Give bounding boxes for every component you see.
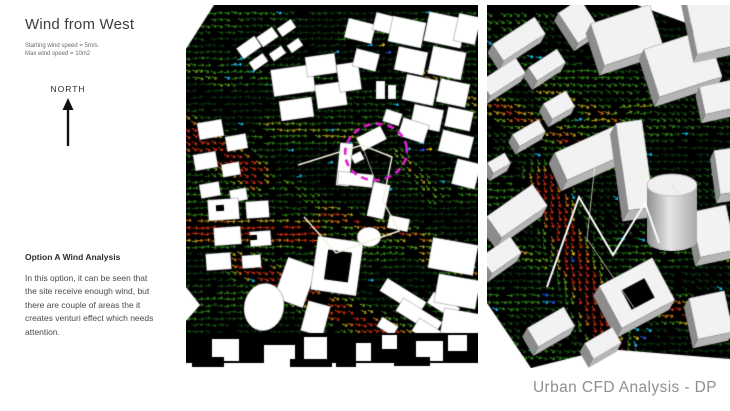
wind-param-start: Starting wind speed = 5m/s.	[25, 42, 99, 50]
wind-param-max: Max wind speed = 10m2	[25, 50, 99, 58]
analysis-body: In this option, it can be seen that the …	[25, 272, 155, 339]
analysis-heading: Option A Wind Analysis	[25, 252, 120, 262]
slide: Wind from West Starting wind speed = 5m/…	[0, 0, 730, 411]
plan-view-cfd-canvas	[186, 5, 478, 370]
north-label: NORTH	[44, 84, 92, 94]
cfd-panel-plan	[186, 5, 478, 370]
slide-title: Wind from West	[25, 16, 134, 33]
north-arrow-icon	[56, 96, 80, 148]
footer-caption: Urban CFD Analysis - DP	[533, 379, 717, 397]
perspective-view-cfd-canvas	[487, 5, 730, 368]
wind-parameters: Starting wind speed = 5m/s. Max wind spe…	[25, 42, 99, 58]
cfd-panel-perspective	[487, 5, 730, 368]
